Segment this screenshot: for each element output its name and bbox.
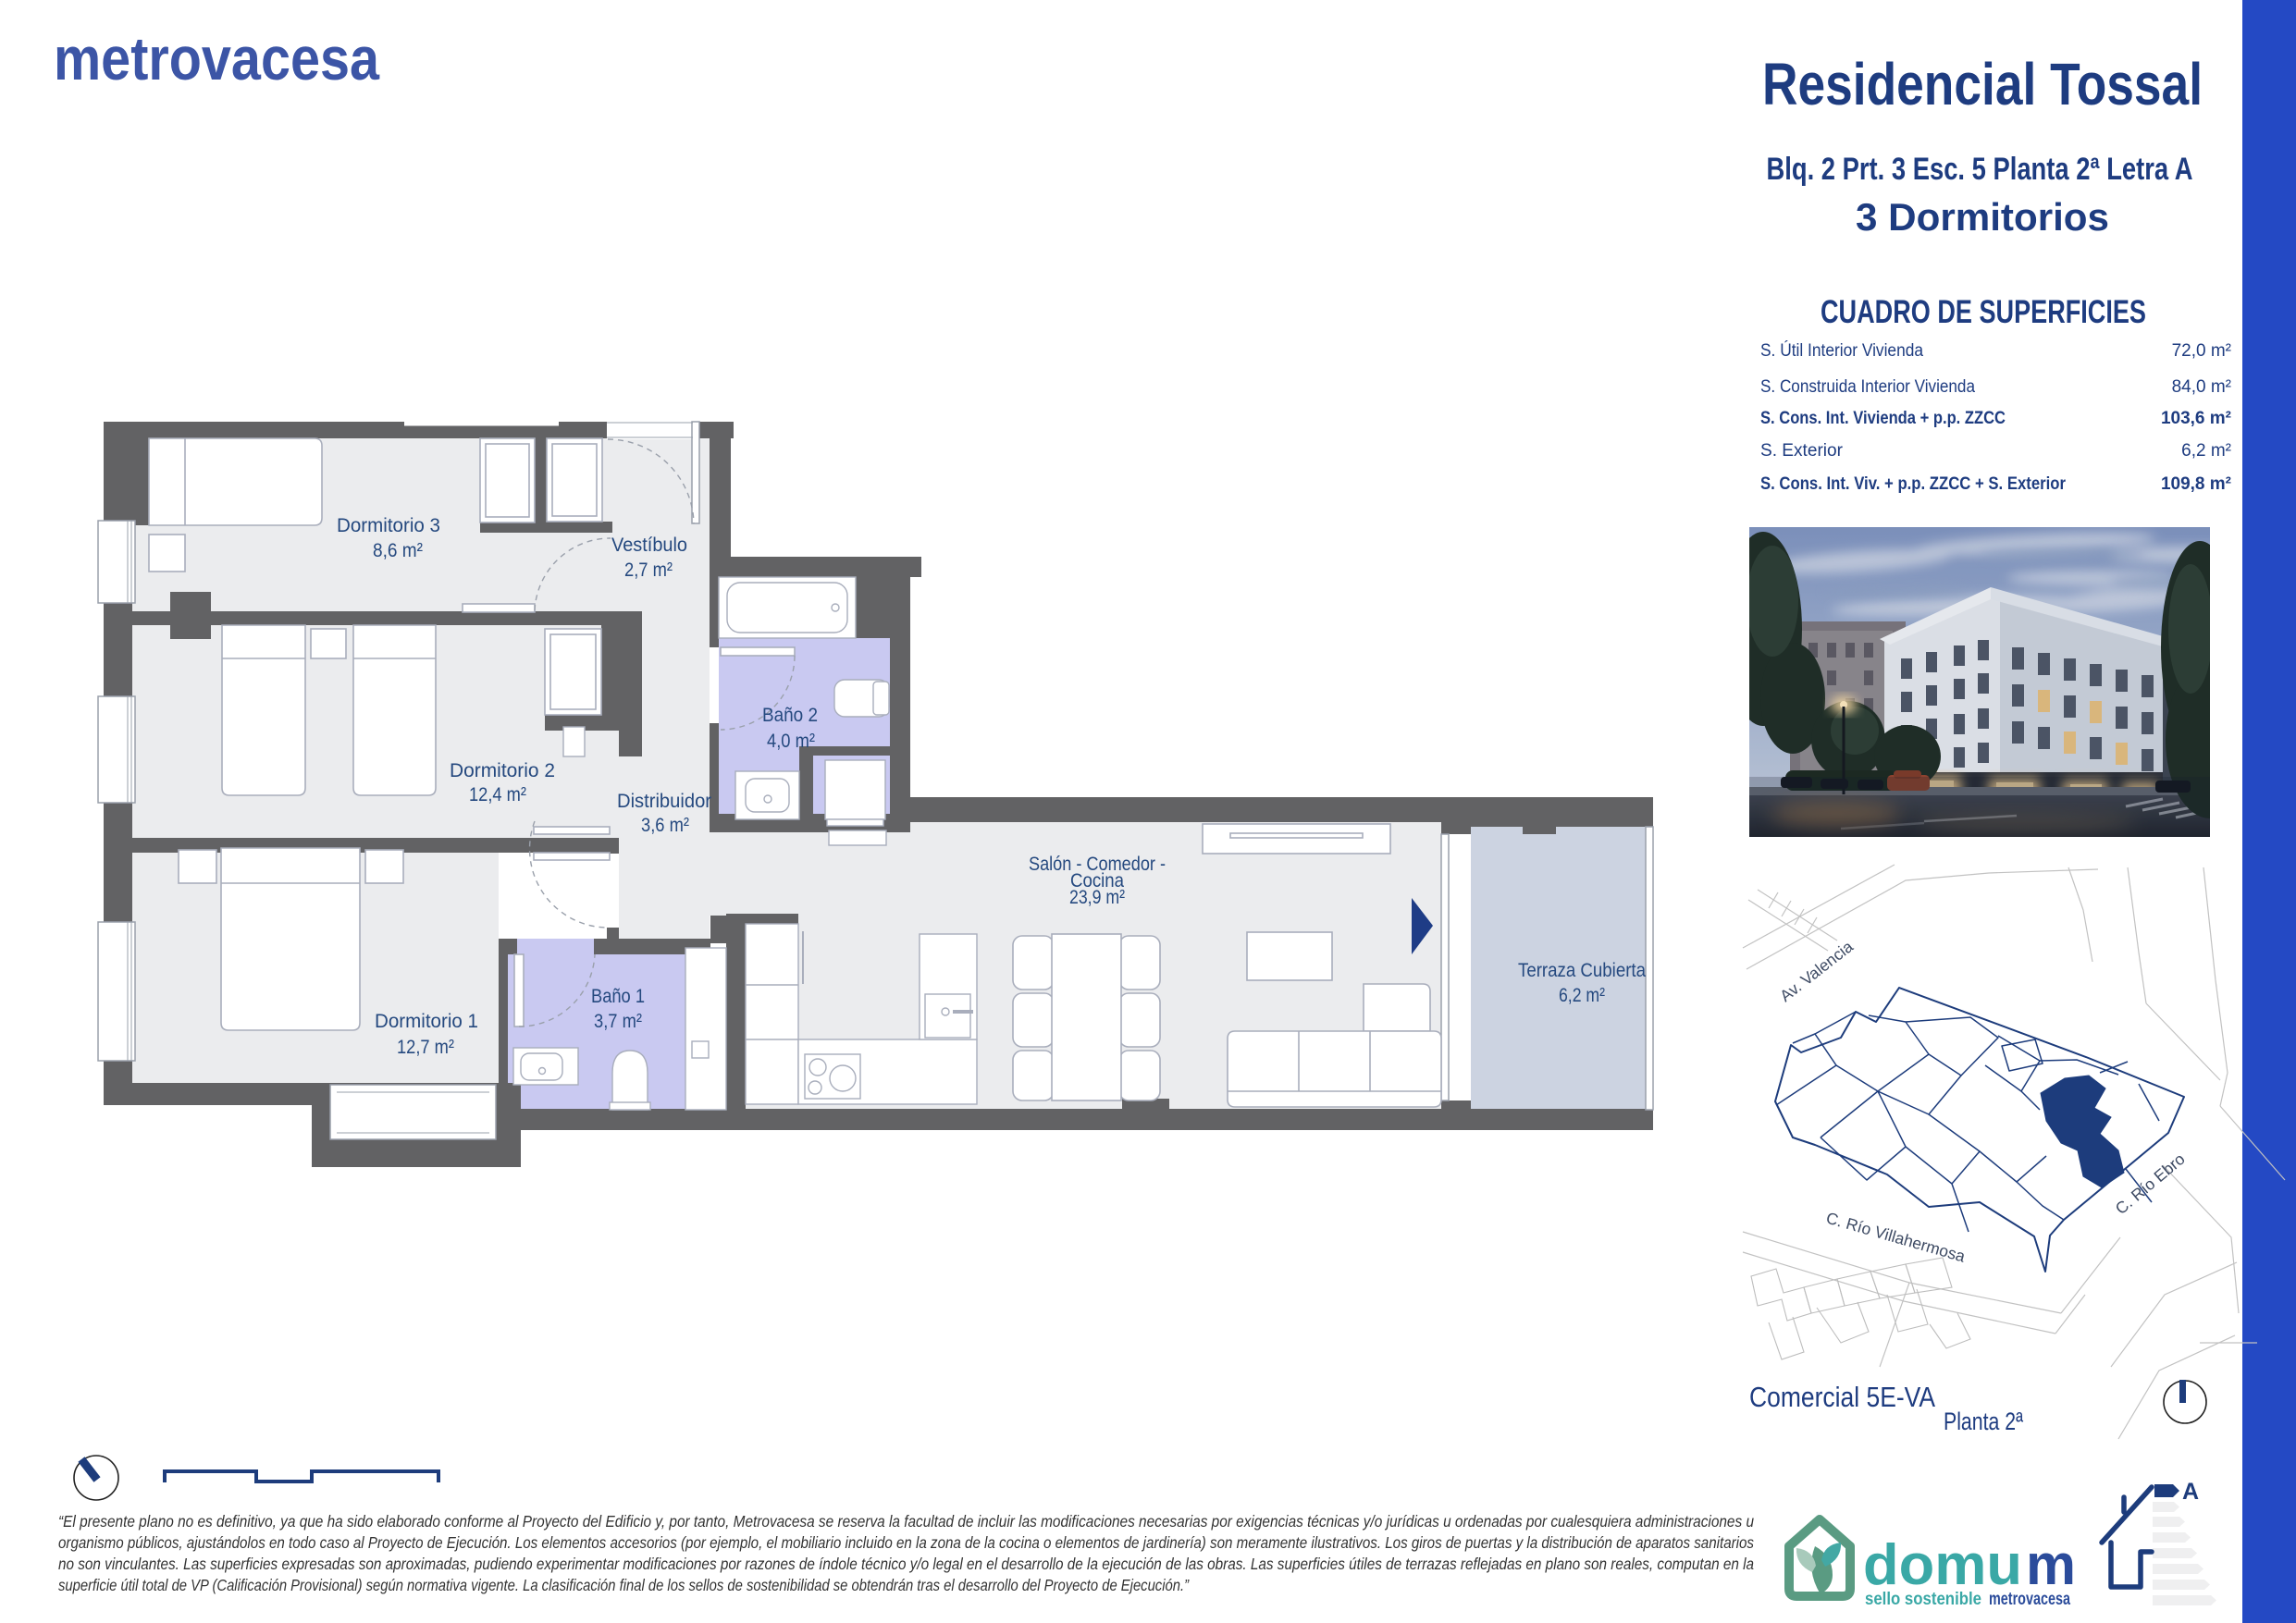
- svg-text:84,0 m²: 84,0 m²: [2172, 377, 2231, 397]
- svg-text:109,8 m²: 109,8 m²: [2161, 474, 2231, 494]
- svg-text:Baño 2: Baño 2: [762, 705, 818, 726]
- svg-text:6,2 m²: 6,2 m²: [2181, 441, 2231, 461]
- svg-text:2,7 m²: 2,7 m²: [624, 559, 673, 581]
- svg-text:4,0 m²: 4,0 m²: [767, 731, 815, 752]
- svg-text:Vestíbulo: Vestíbulo: [611, 535, 687, 556]
- svg-text:3,6 m²: 3,6 m²: [641, 815, 689, 836]
- svg-text:Distribuidor: Distribuidor: [617, 791, 711, 812]
- svg-text:Baño 1: Baño 1: [591, 986, 645, 1007]
- svg-text:Comercial 5E-VA: Comercial 5E-VA: [1749, 1381, 1935, 1413]
- svg-text:Terraza Cubierta: Terraza Cubierta: [1518, 960, 1646, 981]
- svg-text:Dormitorio 1: Dormitorio 1: [375, 1011, 478, 1032]
- svg-text:S. Exterior: S. Exterior: [1760, 441, 1844, 461]
- svg-text:Residencial Tossal: Residencial Tossal: [1762, 51, 2203, 117]
- svg-text:sello sostenible: sello sostenible: [1865, 1590, 1981, 1609]
- svg-text:23,9 m²: 23,9 m²: [1069, 887, 1125, 908]
- svg-text:Blq. 2 Prt. 3 Esc. 5 Planta 2ª: Blq. 2 Prt. 3 Esc. 5 Planta 2ª Letra A: [1767, 152, 2193, 187]
- svg-text:S. Construida Interior Viviend: S. Construida Interior Vivienda: [1760, 377, 1975, 397]
- svg-text:12,7 m²: 12,7 m²: [397, 1037, 454, 1058]
- svg-text:Planta 2ª: Planta 2ª: [1944, 1408, 2024, 1435]
- svg-text:m: m: [2026, 1533, 2076, 1597]
- svg-text:domu: domu: [1863, 1533, 2022, 1597]
- svg-text:organismo públicos, ajustándol: organismo públicos, ajustándolos en todo…: [58, 1533, 1754, 1552]
- svg-text:12,4 m²: 12,4 m²: [469, 784, 526, 805]
- svg-text:superficie útil total de VP (C: superficie útil total de VP (Calificació…: [58, 1576, 1190, 1594]
- svg-text:8,6 m²: 8,6 m²: [373, 540, 423, 561]
- svg-text:S. Cons. Int. Vivienda + p.p.: S. Cons. Int. Vivienda + p.p. ZZCC: [1760, 409, 2006, 428]
- svg-text:Dormitorio 2: Dormitorio 2: [450, 760, 555, 781]
- svg-text:metrovacesa: metrovacesa: [1989, 1590, 2070, 1609]
- svg-text:103,6 m²: 103,6 m²: [2161, 409, 2231, 428]
- svg-text:72,0 m²: 72,0 m²: [2172, 341, 2231, 361]
- svg-text:A: A: [2182, 1479, 2199, 1505]
- svg-text:metrovacesa: metrovacesa: [54, 24, 380, 92]
- svg-text:6,2 m²: 6,2 m²: [1559, 985, 1605, 1006]
- svg-text:CUADRO DE SUPERFICIES: CUADRO DE SUPERFICIES: [1821, 294, 2146, 330]
- svg-text:3 Dormitorios: 3 Dormitorios: [1856, 195, 2109, 239]
- svg-text:S. Útil Interior Vivienda: S. Útil Interior Vivienda: [1760, 340, 1923, 361]
- svg-text:Dormitorio 3: Dormitorio 3: [337, 515, 440, 536]
- svg-text:no son vinculantes. Las superf: no son vinculantes. Las superficies expr…: [58, 1555, 1754, 1573]
- svg-text:“El presente plano no es defin: “El presente plano no es definitivo, ya …: [58, 1512, 1754, 1531]
- svg-text:S. Cons. Int. Viv. + p.p. ZZCC: S. Cons. Int. Viv. + p.p. ZZCC + S. Exte…: [1760, 474, 2067, 494]
- svg-text:3,7 m²: 3,7 m²: [594, 1011, 642, 1032]
